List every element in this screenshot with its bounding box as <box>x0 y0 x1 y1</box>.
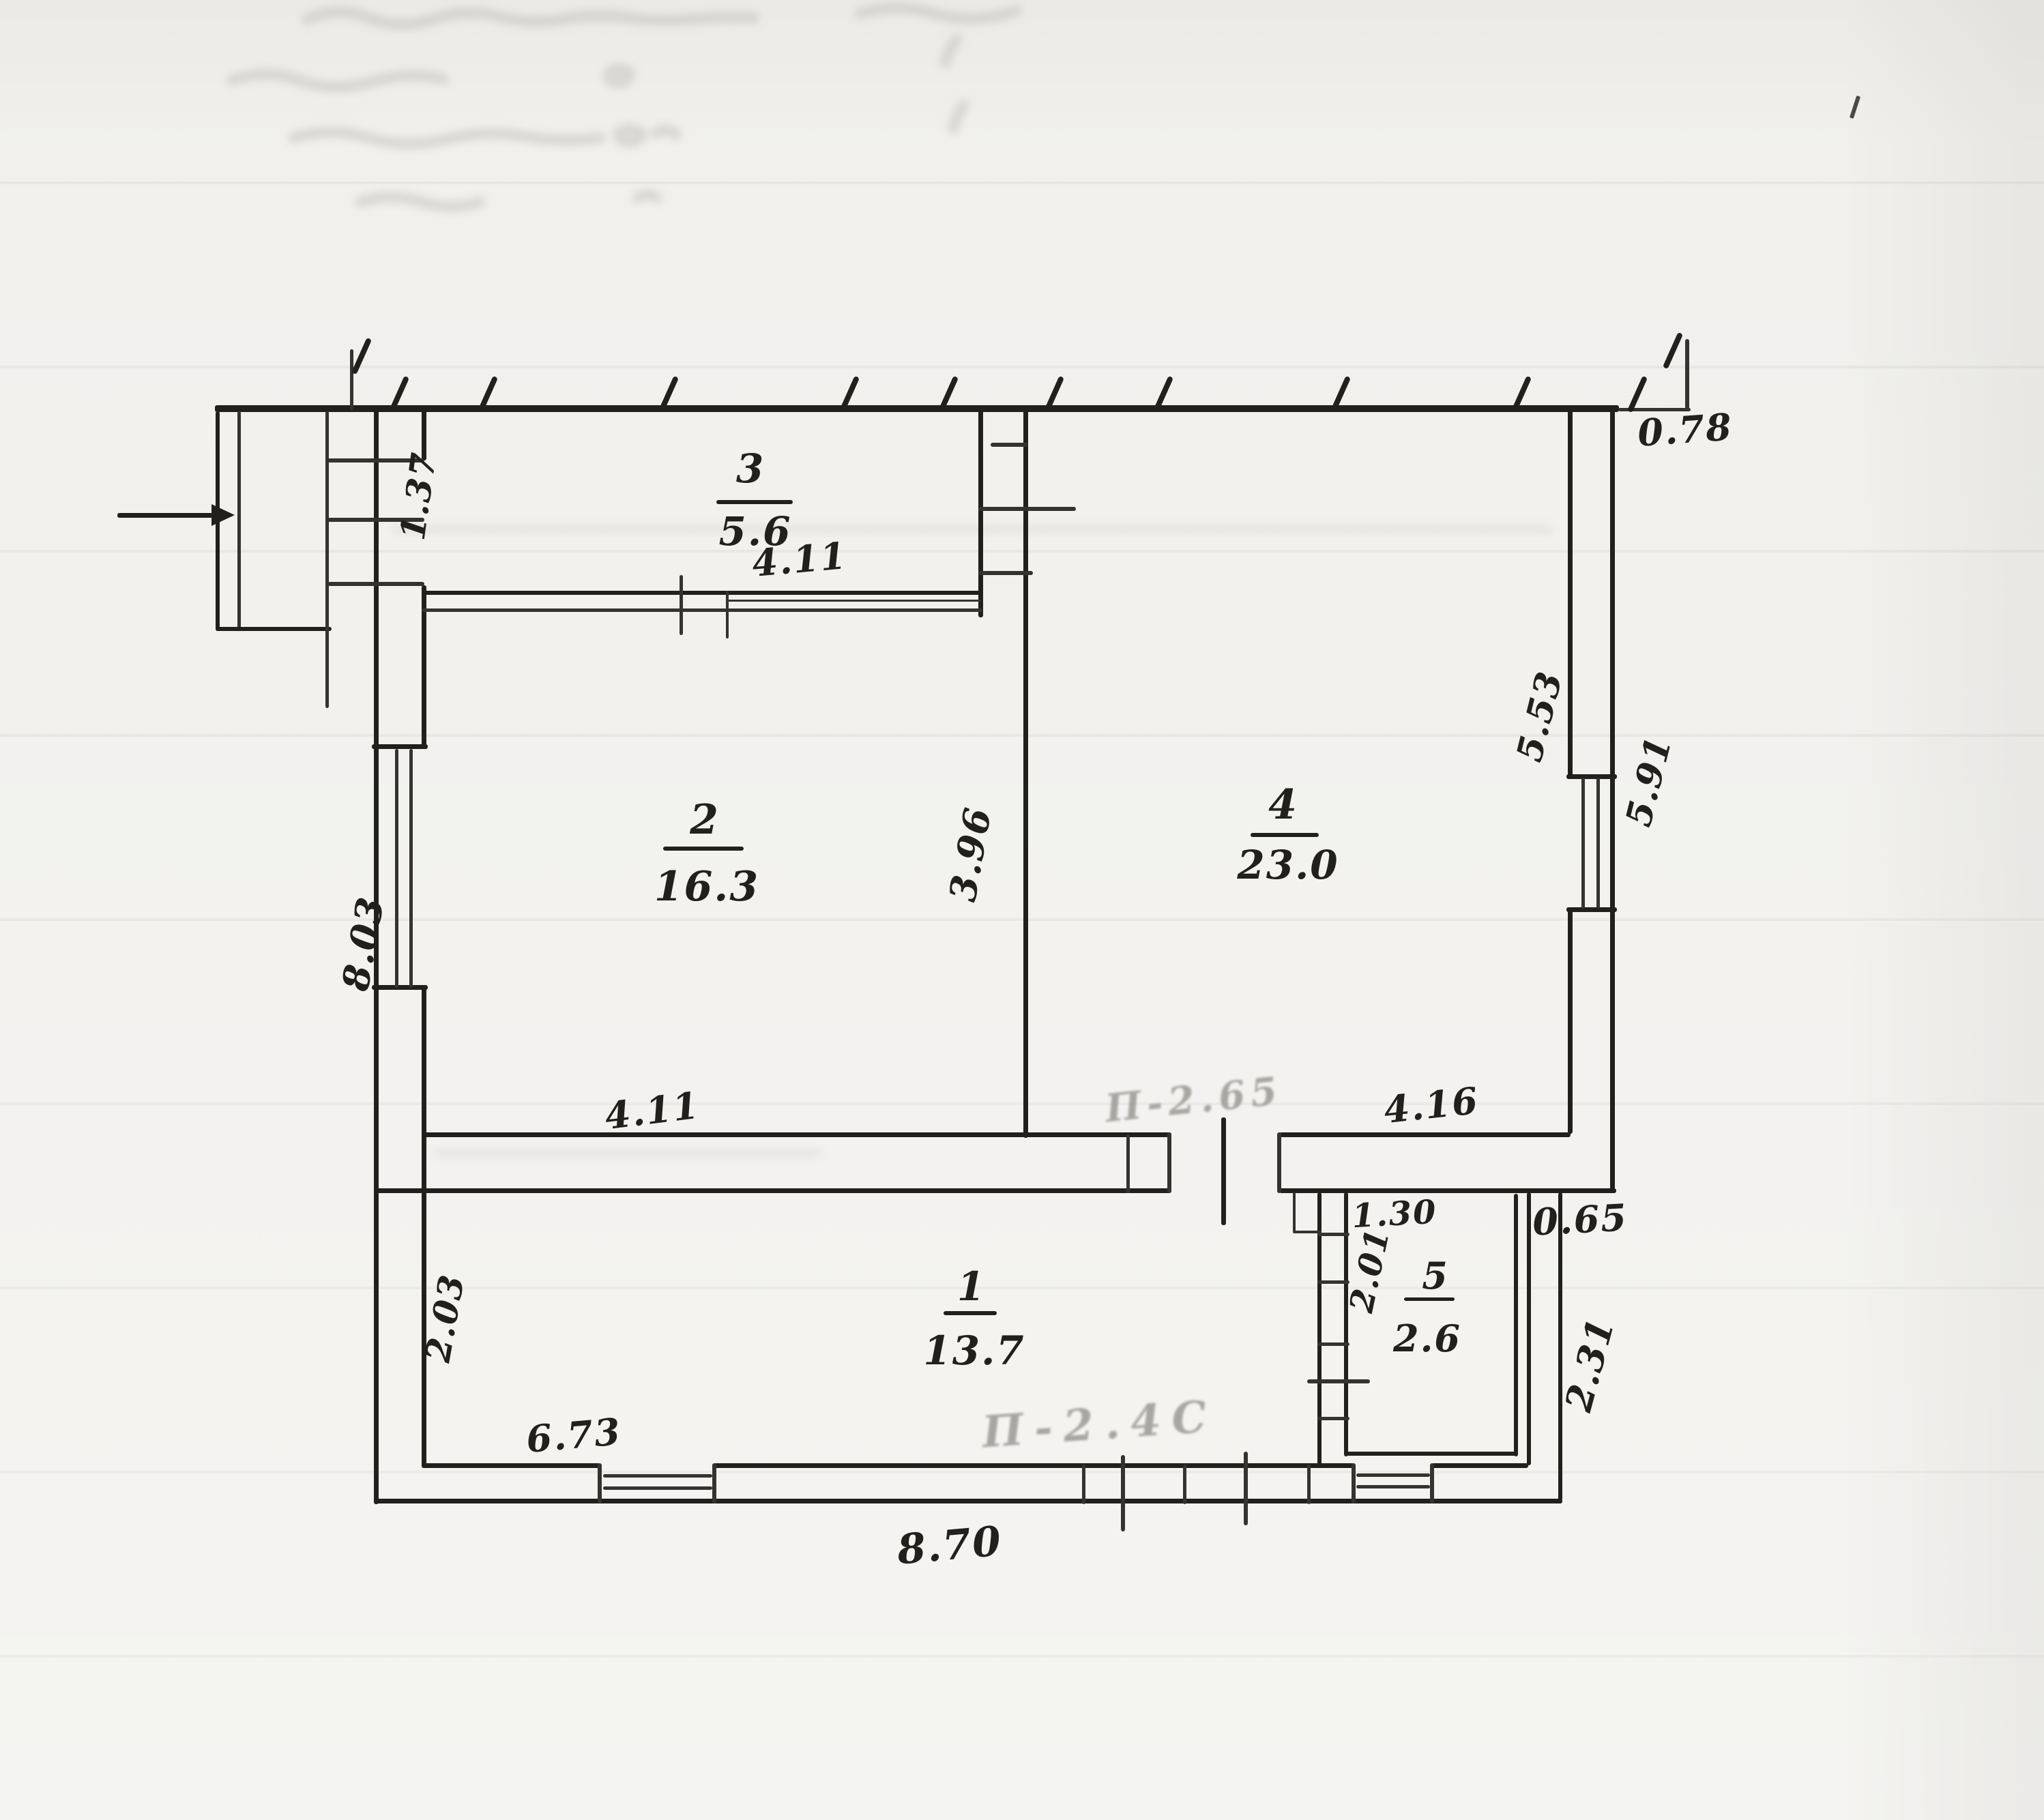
bleedthrough-ghost-text <box>0 0 2044 1820</box>
room4-fraction-line <box>1251 833 1319 837</box>
window-left-glazing <box>409 749 413 988</box>
room4-number: 4 <box>1268 781 1298 829</box>
window-bottom1-cap <box>712 1463 716 1503</box>
wall-room3-room4 <box>978 409 983 617</box>
dim-right-bottom-height: 2.31 <box>1556 1312 1623 1415</box>
room4-area: 23.0 <box>1237 842 1339 888</box>
room1-fraction-line <box>944 1311 997 1315</box>
door-middle-leaf <box>1221 1117 1226 1225</box>
wall-right-inner <box>1568 909 1573 1134</box>
room2-fraction-line <box>663 847 744 851</box>
wall-room3-room2-lower <box>422 608 982 612</box>
dim-right-bottom-offset: 0.65 <box>1532 1195 1629 1244</box>
window-bottom2-glazing <box>1356 1473 1430 1477</box>
wall-bottom-outer <box>374 1499 1562 1503</box>
wall-hatch-rung <box>1317 1342 1349 1346</box>
dim-tick-slash <box>351 338 372 375</box>
dim-tick <box>1244 1452 1248 1525</box>
paper-speck <box>1850 96 1860 119</box>
room5-number: 5 <box>1422 1254 1449 1297</box>
wall-right-outer <box>1610 408 1615 1192</box>
wall-room2-room4 <box>1023 409 1028 1138</box>
pencil-note-door-outside: П-2.4С <box>980 1391 1219 1458</box>
wall-room3-room2-upper <box>422 591 982 595</box>
dim-room1-bottom-width: 6.73 <box>525 1409 624 1461</box>
dim-tick <box>1307 1465 1311 1504</box>
dim-tick-slash <box>1663 332 1683 369</box>
window-left-cap <box>372 744 428 749</box>
wall-right-lower-inner <box>1527 1192 1531 1465</box>
window-bottom2-cap <box>1352 1463 1356 1503</box>
dim-top-right-offset: 0.78 <box>1636 405 1734 455</box>
window-bottom2-glazing <box>1356 1485 1430 1488</box>
room3-fraction-line <box>716 500 793 504</box>
dim-room2-bottom-width: 4.11 <box>602 1083 702 1139</box>
partition-tick <box>726 591 729 639</box>
dim-room4-right-height: 5.53 <box>1508 666 1571 765</box>
partition-tick <box>680 575 683 635</box>
window-bottom1-cap <box>598 1463 602 1503</box>
porch-wall-right <box>325 411 329 708</box>
wall-hatch-rung <box>1317 1233 1349 1236</box>
porch-wall-inner <box>237 411 241 631</box>
niche-line <box>1293 1231 1322 1233</box>
dim-tick <box>1183 1465 1186 1504</box>
dim-tick <box>1082 1465 1085 1504</box>
dim-room2-right-height: 3.96 <box>940 804 999 905</box>
dim-room3-bottom-width: 4.11 <box>750 533 849 585</box>
window-right-glazing <box>1596 778 1600 909</box>
entrance-arrow-head <box>211 504 235 526</box>
dim-room4-bottom-width: 4.16 <box>1382 1078 1480 1132</box>
entrance-arrow-shaft <box>117 513 213 518</box>
room5-fraction-line <box>1404 1297 1455 1301</box>
dim-right-wall-outside: 5.91 <box>1618 731 1680 830</box>
door-middle-jamb <box>1277 1132 1281 1193</box>
dim-room5-left-height: 2.01 <box>1343 1224 1398 1316</box>
wall-right-inner <box>1568 408 1573 778</box>
window-right-cap <box>1566 907 1617 912</box>
wall-room5-right <box>1514 1194 1518 1456</box>
window-bottom2-cap <box>1430 1463 1434 1503</box>
door-room4-leaf <box>978 507 1076 511</box>
pencil-note-door-room4: П-2.65 <box>1103 1068 1285 1132</box>
wall-bottom-inner <box>422 1463 600 1468</box>
door-room4-jamb <box>991 443 1028 447</box>
room1-area: 13.7 <box>923 1327 1025 1374</box>
wall-hatch-rung <box>1317 1280 1349 1284</box>
dim-left-wall-outside: 8.03 <box>333 893 392 995</box>
wall-middle-lower <box>1279 1188 1616 1193</box>
wall-left-inner <box>422 988 426 1467</box>
entrance-door-jamb <box>327 582 424 586</box>
room3-number: 3 <box>736 445 765 492</box>
window-right-cap <box>1566 774 1617 779</box>
door-room4-jamb <box>978 571 1033 575</box>
dim-extension-right-vertical <box>1685 339 1689 409</box>
porch-wall-bottom <box>216 627 332 631</box>
window-bottom1-glazing <box>603 1474 712 1478</box>
wall-middle-lower <box>374 1188 1171 1193</box>
room2-number: 2 <box>690 796 720 844</box>
wall-hatch-rung <box>1317 1417 1349 1420</box>
room2-area: 16.3 <box>654 863 759 911</box>
wall-bottom-inner <box>1431 1463 1528 1468</box>
wall-bottom-inner <box>714 1463 1354 1468</box>
wall-middle-upper <box>422 1132 1171 1137</box>
niche-line <box>1293 1192 1296 1232</box>
wall-room3-room2-glazing <box>727 600 981 602</box>
window-left-cap <box>372 985 428 990</box>
dim-extension-left-vertical <box>350 349 353 411</box>
dim-tick <box>1121 1455 1125 1531</box>
room5-area: 2.6 <box>1393 1317 1461 1360</box>
room1-number: 1 <box>957 1263 986 1310</box>
window-bottom1-glazing <box>603 1486 712 1490</box>
window-left-glazing <box>395 749 398 988</box>
dim-tick <box>1126 1134 1130 1193</box>
wall-room5-bottom <box>1344 1452 1518 1456</box>
dim-porch-entry-width: 1.37 <box>392 450 444 543</box>
dim-bottom-outside-width: 8.70 <box>895 1517 1004 1574</box>
wall-hatch-rung-wide <box>1307 1379 1370 1383</box>
door-middle-jamb <box>1167 1132 1171 1193</box>
window-right-glazing <box>1581 778 1585 909</box>
floor-plan-page: 3 5.6 2 16.3 4 23.0 1 13.7 5 2.6 1.37 4.… <box>0 0 2044 1820</box>
wall-middle-upper <box>1279 1132 1571 1137</box>
